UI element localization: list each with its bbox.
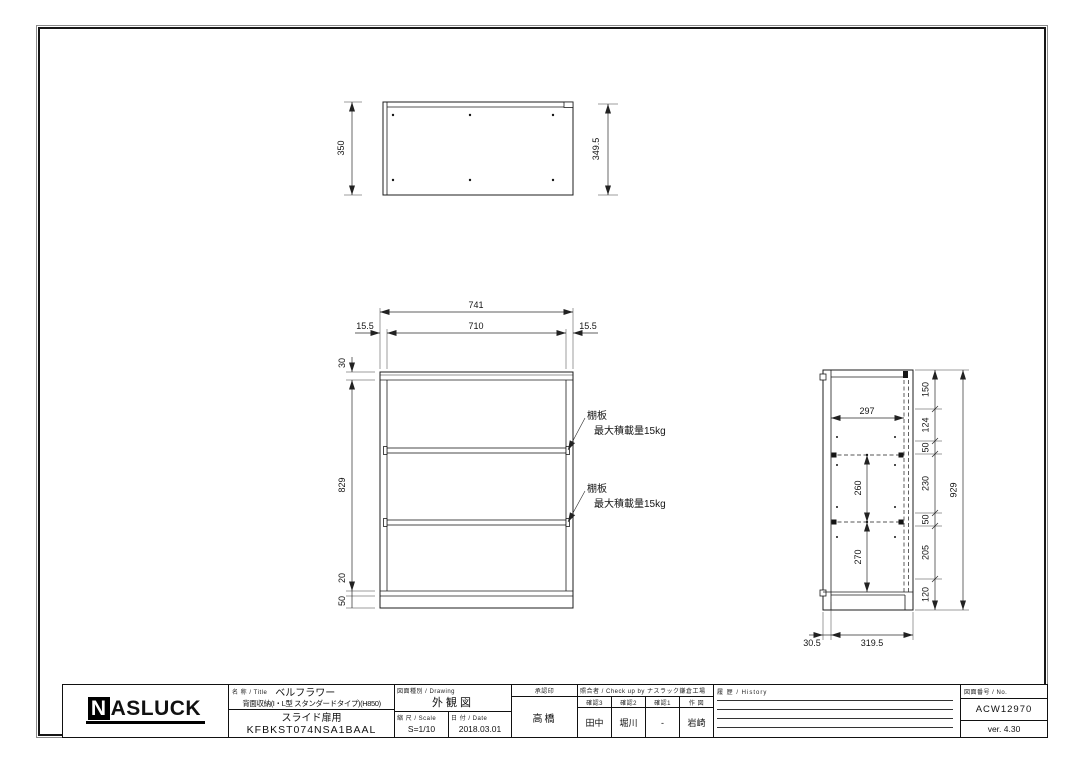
check1-label: 確認1	[654, 698, 671, 707]
logo-cell: NASLUCK	[63, 685, 229, 737]
screw-hole	[392, 179, 394, 181]
screw-hole	[552, 179, 554, 181]
shelf-lower-left-cap	[384, 519, 388, 527]
drawing-version: ver. 4.30	[961, 720, 1047, 737]
draft-value: 岩崎	[680, 708, 713, 737]
logo-letters-asluck: ASLUCK	[111, 697, 202, 720]
approver-name: 高橋	[512, 697, 577, 737]
cabinet-outline	[380, 372, 573, 608]
shelf-bracket	[899, 453, 904, 458]
checkup-col-header: 確認3	[578, 697, 611, 708]
drawing-type-cell: 図面種別 / Drawing 外観図 縮 尺 / Scale S=1/10 日 …	[395, 685, 512, 737]
dim-label-319-5: 319.5	[861, 638, 884, 648]
history-rule	[717, 727, 953, 728]
shelf-bracket	[832, 520, 837, 525]
title-block: NASLUCK 名 称 / Title ベルフラワー 背面収納(I・L型 スタン…	[62, 684, 1048, 738]
checkup-col-3: 確認3 田中	[578, 697, 612, 737]
scale-label: 縮 尺 / Scale	[397, 713, 436, 722]
approval-cell: 承認印 高橋	[512, 685, 578, 737]
dim-label-124: 124	[921, 417, 931, 432]
history-rule	[717, 709, 953, 710]
check3-value: 田中	[578, 708, 611, 737]
scale-value: S=1/10	[395, 724, 448, 734]
dim-label-30-5: 30.5	[803, 638, 821, 648]
checkup-col-header: 確認1	[646, 697, 679, 708]
dim-label-741: 741	[468, 300, 483, 310]
nasluck-logo: NASLUCK	[86, 698, 205, 724]
history-label: 履 歴 / History	[717, 687, 767, 696]
shelf-upper	[387, 448, 566, 453]
top-view: 350 349.5	[330, 88, 630, 208]
pin-hole	[836, 464, 838, 466]
check1-value: -	[646, 708, 679, 737]
front-view: 741 710 15.5 15.5 30 829 20 50 棚板 最大積載	[325, 295, 675, 620]
title-cell: 名 称 / Title ベルフラワー 背面収納(I・L型 スタンダードタイプ)(…	[229, 685, 395, 737]
product-code: KFBKST074NSA1BAAL	[229, 723, 394, 737]
pin-hole	[894, 464, 896, 466]
dim-label-30: 30	[337, 358, 347, 368]
shelf-note-load: 最大積載量15kg	[594, 497, 666, 510]
top-view-body	[383, 102, 573, 195]
screw-hole	[469, 179, 471, 181]
product-name-row: 名 称 / Title ベルフラワー	[229, 685, 394, 697]
check3-label: 確認3	[586, 698, 603, 707]
dim-label-710: 710	[468, 321, 483, 331]
dim-label-150: 150	[921, 382, 931, 397]
shelf-note-title: 棚板	[587, 409, 607, 422]
checkup-cell: 照合者 / Check up by ナスラック鎌倉工場 確認3 田中 確認2 堀…	[578, 685, 714, 737]
shelf-note-load: 最大積載量15kg	[594, 424, 666, 437]
checkup-col-draft: 作 図 岩崎	[680, 697, 713, 737]
check2-value: 堀川	[612, 708, 645, 737]
shelf-lower	[387, 520, 566, 525]
dim-label-120: 120	[921, 587, 931, 602]
shelf-bracket	[899, 520, 904, 525]
pin-hole	[894, 536, 896, 538]
dim-label-15-5-right: 15.5	[579, 321, 597, 331]
dim-label-205: 205	[921, 545, 931, 560]
checkup-label: 照合者 / Check up by ナスラック鎌倉工場	[580, 686, 706, 695]
logo-letter-n: N	[88, 697, 110, 720]
pin-hole	[836, 436, 838, 438]
dim-label-350: 350	[336, 140, 346, 155]
checkup-col-1: 確認1 -	[646, 697, 680, 737]
dim-label-50a: 50	[921, 442, 931, 452]
date-value: 2018.03.01	[449, 724, 511, 734]
screw-hole	[469, 114, 471, 116]
checkup-col-2: 確認2 堀川	[612, 697, 646, 737]
approval-header: 承認印	[512, 685, 577, 697]
drawing-page: 350 349.5	[0, 0, 1080, 764]
dim-label-349-5: 349.5	[591, 138, 601, 161]
door-notch-top	[820, 374, 826, 380]
dim-label-230: 230	[921, 476, 931, 491]
drawing-number-header: 図面番号 / No.	[961, 685, 1047, 698]
dim-label-929: 929	[949, 482, 959, 497]
side-view: 297 260 270 150 124 50 230 50	[775, 350, 1005, 660]
checkup-columns: 確認3 田中 確認2 堀川 確認1 -	[578, 697, 713, 737]
history-rule	[717, 718, 953, 719]
date-cell: 日 付 / Date 2018.03.01	[449, 712, 511, 737]
checkup-header: 照合者 / Check up by ナスラック鎌倉工場	[578, 685, 713, 697]
shelf-note-title: 棚板	[587, 482, 607, 495]
date-label: 日 付 / Date	[451, 713, 487, 722]
drawing-type-value: 外観図	[395, 694, 511, 710]
product-name: ベルフラワー	[275, 685, 335, 697]
draft-label: 作 図	[689, 698, 704, 707]
pin-hole	[836, 536, 838, 538]
scale-date-row: 縮 尺 / Scale S=1/10 日 付 / Date 2018.03.01	[395, 712, 511, 737]
side-view-right-chain: 150 124 50 230 50 205 120 929	[915, 370, 969, 610]
door-notch-bottom	[820, 590, 826, 596]
history-cell: 履 歴 / History	[714, 685, 961, 737]
dim-label-15-5-left: 15.5	[356, 321, 374, 331]
checkup-col-header: 確認2	[612, 697, 645, 708]
drawing-number-cell: 図面番号 / No. ACW12970 ver. 4.30	[961, 685, 1047, 737]
dim-label-297: 297	[859, 406, 874, 416]
dim-label-260: 260	[853, 480, 863, 495]
screw-hole	[552, 114, 554, 116]
top-view-corner-block	[564, 102, 573, 108]
history-rule	[717, 700, 953, 701]
approval-label: 承認印	[535, 686, 555, 695]
top-view-outline	[383, 102, 573, 195]
product-use: スライド扉用	[229, 710, 394, 723]
shelf-annotation-lower: 棚板 最大積載量15kg	[568, 482, 666, 522]
front-view-body	[380, 372, 573, 608]
dim-label-50: 50	[337, 596, 347, 606]
shelf-annotation-upper: 棚板 最大積載量15kg	[568, 409, 666, 450]
dim-label-829: 829	[337, 477, 347, 492]
drawing-type-top: 図面種別 / Drawing 外観図	[395, 685, 511, 712]
back-rail-section	[903, 371, 908, 378]
pin-hole	[894, 506, 896, 508]
drawing-number-label: 図面番号 / No.	[964, 690, 1007, 696]
dim-label-50b: 50	[921, 514, 931, 524]
pin-hole	[836, 506, 838, 508]
name-label: 名 称 / Title	[232, 687, 267, 696]
dim-label-20: 20	[337, 573, 347, 583]
scale-cell: 縮 尺 / Scale S=1/10	[395, 712, 449, 737]
checkup-col-header: 作 図	[680, 697, 713, 708]
dim-label-270: 270	[853, 549, 863, 564]
check2-label: 確認2	[620, 698, 637, 707]
pin-hole	[894, 436, 896, 438]
screw-hole	[392, 114, 394, 116]
shelf-bracket	[832, 453, 837, 458]
drawing-number-value: ACW12970	[961, 698, 1047, 720]
shelf-upper-left-cap	[384, 447, 388, 455]
